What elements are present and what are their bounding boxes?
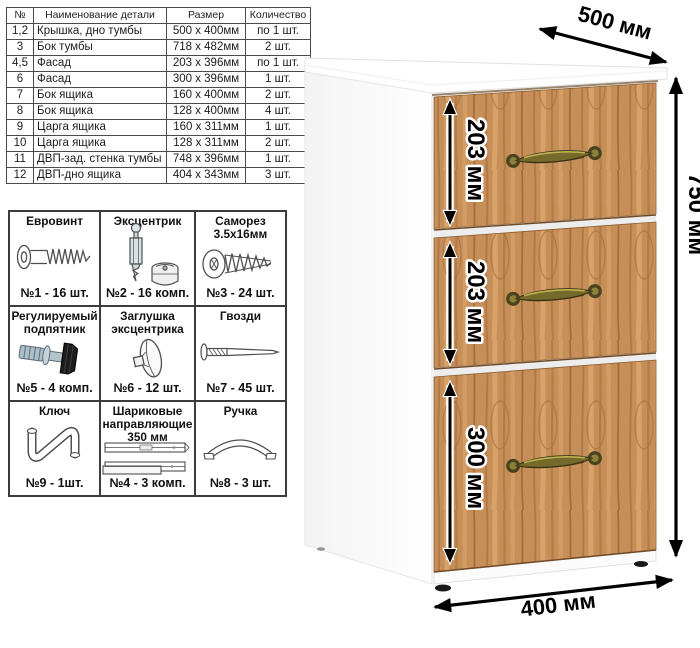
width-dimension-label: 500 мм (575, 1, 654, 45)
cabinet-foot (317, 547, 325, 551)
drawer2-dimension-label: 203 мм (462, 261, 489, 343)
drawer3-dimension-label: 300 мм (462, 427, 489, 509)
cabinet-foot (634, 561, 648, 567)
cabinet-side-panel (305, 72, 432, 584)
height-dimension-label: 750 мм (683, 173, 700, 255)
drawer1-dimension-label: 203 мм (462, 119, 489, 201)
cabinet-foot (435, 585, 451, 592)
depth-dimension-label: 400 мм (519, 588, 597, 622)
cabinet-illustration: 203 мм 203 мм 300 мм 750 мм 500 мм 400 м… (0, 0, 700, 648)
